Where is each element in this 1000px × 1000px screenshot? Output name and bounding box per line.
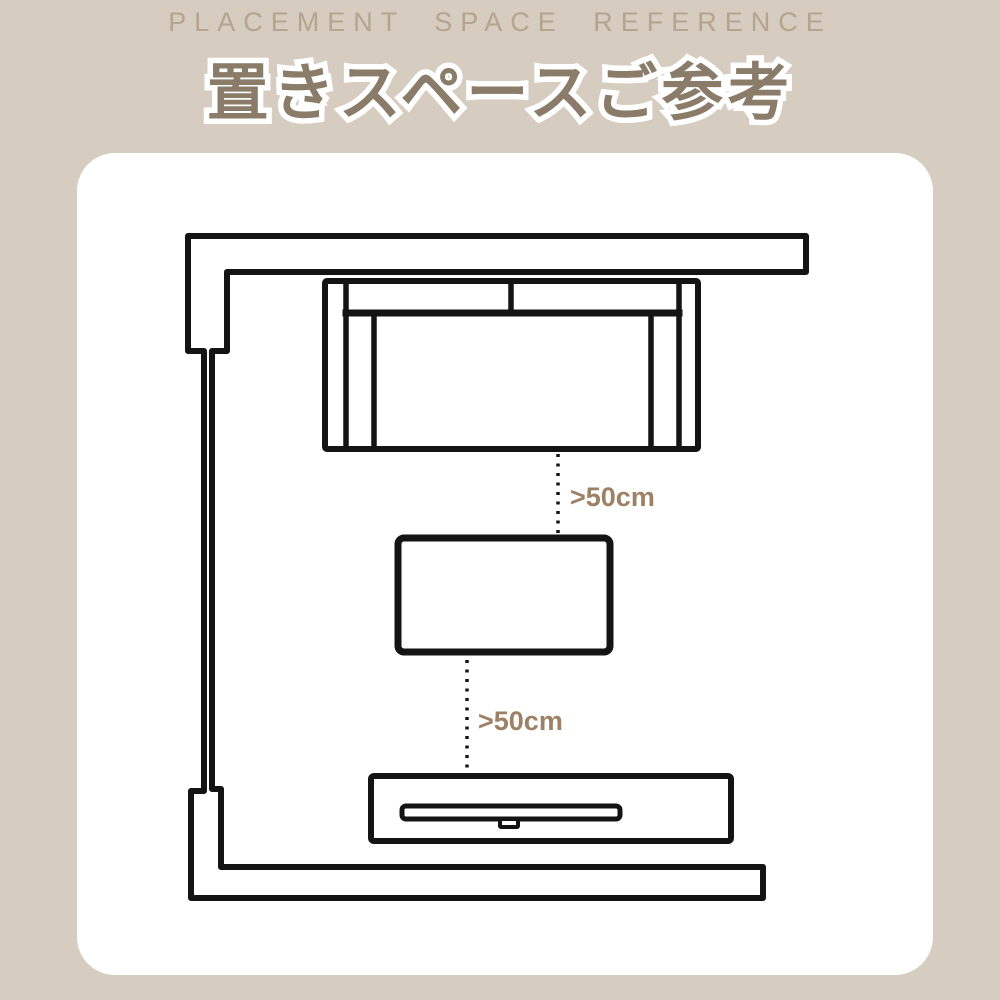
table — [398, 538, 610, 652]
tv-stand — [371, 776, 731, 841]
spacing-label-sofa-table: >50cm — [570, 482, 655, 513]
sofa — [325, 281, 698, 449]
floor-plan-svg — [0, 0, 1000, 1000]
spacing-label-table-tvstand: >50cm — [478, 706, 563, 737]
page-background: PLACEMENT SPACE REFERENCE 置きスペースご参考 >50 — [0, 0, 1000, 1000]
tv-base — [500, 819, 518, 827]
